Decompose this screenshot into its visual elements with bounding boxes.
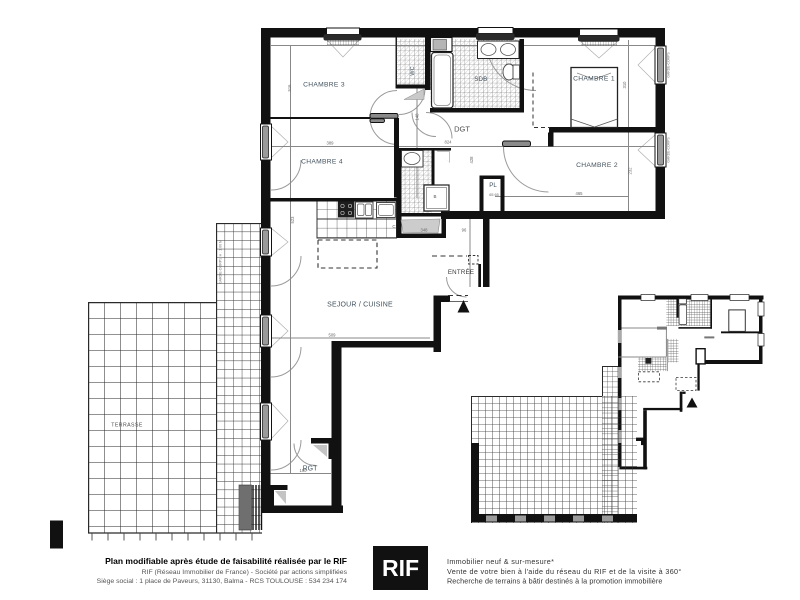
svg-text:CHAMBRE 4: CHAMBRE 4 <box>301 159 343 166</box>
svg-text:SEJOUR / CUISINE: SEJOUR / CUISINE <box>327 302 393 309</box>
svg-text:PL: PL <box>489 182 497 189</box>
svg-text:GARDE-CORPS: GARDE-CORPS <box>667 137 671 163</box>
svg-text:310: 310 <box>622 81 627 89</box>
svg-text:CHAMBRE 2: CHAMBRE 2 <box>576 162 618 169</box>
svg-text:465: 465 <box>576 191 584 196</box>
svg-text:CHAMBRE 3: CHAMBRE 3 <box>303 82 345 89</box>
svg-text:389: 389 <box>327 141 335 146</box>
svg-text:DGT: DGT <box>454 125 470 134</box>
svg-text:SDB: SDB <box>474 77 487 83</box>
svg-text:WC: WC <box>410 66 416 75</box>
svg-text:523: 523 <box>290 216 295 224</box>
svg-text:232: 232 <box>628 167 633 175</box>
svg-text:CHAMBRE 1: CHAMBRE 1 <box>573 76 615 83</box>
svg-text:Siège social : 1 place de Pave: Siège social : 1 place de Paveurs, 31130… <box>97 578 348 585</box>
svg-text:GARDE-CORPS: GARDE-CORPS <box>667 52 671 78</box>
svg-text:509: 509 <box>329 333 337 338</box>
svg-text:516: 516 <box>287 84 292 92</box>
svg-text:RIF (Réseau Immobilier de Fra: RIF (Réseau Immobilier de France) - Soci… <box>142 569 348 576</box>
svg-text:348: 348 <box>421 228 429 233</box>
svg-text:GARDE-CORPS H : 1.00 M: GARDE-CORPS H : 1.00 M <box>219 240 223 284</box>
svg-text:Vente de votre bien à l'aide d: Vente de votre bien à l'aide du réseau d… <box>447 567 682 576</box>
svg-text:RIF: RIF <box>382 555 419 581</box>
svg-text:TERRASSE: TERRASSE <box>111 423 143 429</box>
svg-text:B: B <box>433 194 436 199</box>
svg-text:Recherche de terrains à bâtir: Recherche de terrains à bâtir destinés à… <box>447 577 663 586</box>
svg-text:ENTRÉE: ENTRÉE <box>448 269 474 276</box>
svg-text:428: 428 <box>469 156 474 164</box>
svg-text:190: 190 <box>300 468 308 473</box>
svg-text:148: 148 <box>415 113 420 121</box>
svg-text:96: 96 <box>462 228 467 233</box>
svg-text:Immobilier neuf & sur-mesure*: Immobilier neuf & sur-mesure* <box>447 557 554 566</box>
svg-text:824: 824 <box>445 140 453 145</box>
svg-text:Plan modifiable après étude de: Plan modifiable après étude de faisabili… <box>105 556 347 566</box>
svg-text:65 65: 65 65 <box>489 193 499 197</box>
